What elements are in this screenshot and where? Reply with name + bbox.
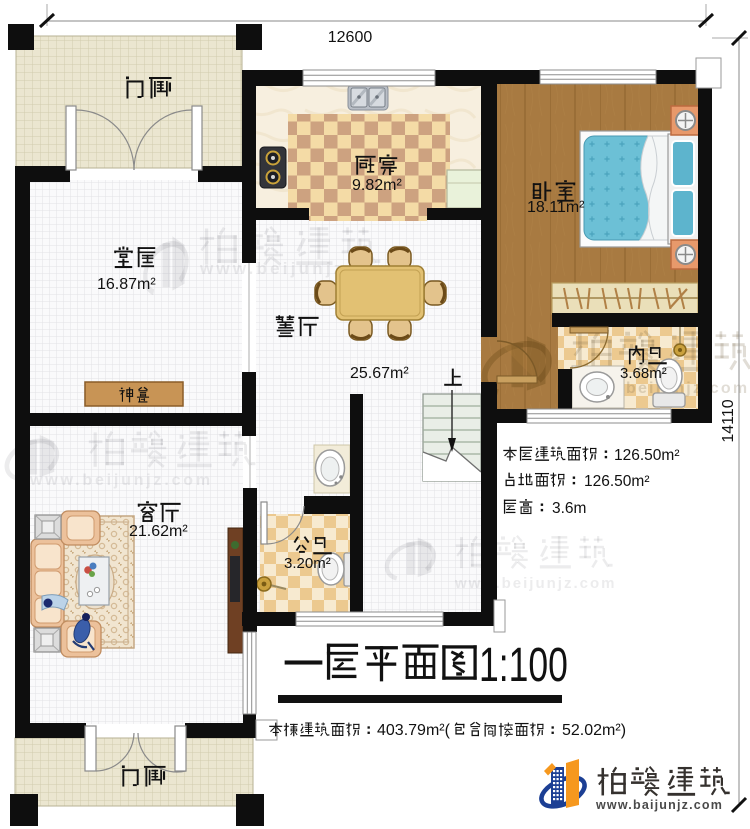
svg-text:www.beijunjz.com: www.beijunjz.com <box>454 575 616 592</box>
svg-text:www.baijunjz.com: www.baijunjz.com <box>595 798 723 812</box>
svg-text:25.67m²: 25.67m² <box>350 365 409 382</box>
svg-text:www.beijunjz.com: www.beijunjz.com <box>29 472 213 489</box>
svg-text:403.79m²(: 403.79m²( <box>377 722 451 739</box>
svg-text:126.50m²: 126.50m² <box>614 447 679 464</box>
svg-text:52.02m²): 52.02m²) <box>562 722 626 739</box>
svg-text:9.82m²: 9.82m² <box>352 177 402 194</box>
svg-text:3.6m: 3.6m <box>552 500 586 517</box>
svg-text:16.87m²: 16.87m² <box>97 276 156 293</box>
svg-text:3.68m²: 3.68m² <box>620 365 667 382</box>
svg-text:12600: 12600 <box>328 29 373 46</box>
svg-text:18.11m²: 18.11m² <box>527 199 585 216</box>
svg-text:14110: 14110 <box>720 399 737 442</box>
svg-text:1:100: 1:100 <box>479 638 568 691</box>
svg-text:126.50m²: 126.50m² <box>584 473 649 490</box>
svg-text:3.20m²: 3.20m² <box>284 555 331 572</box>
svg-text:21.62m²: 21.62m² <box>129 523 188 540</box>
